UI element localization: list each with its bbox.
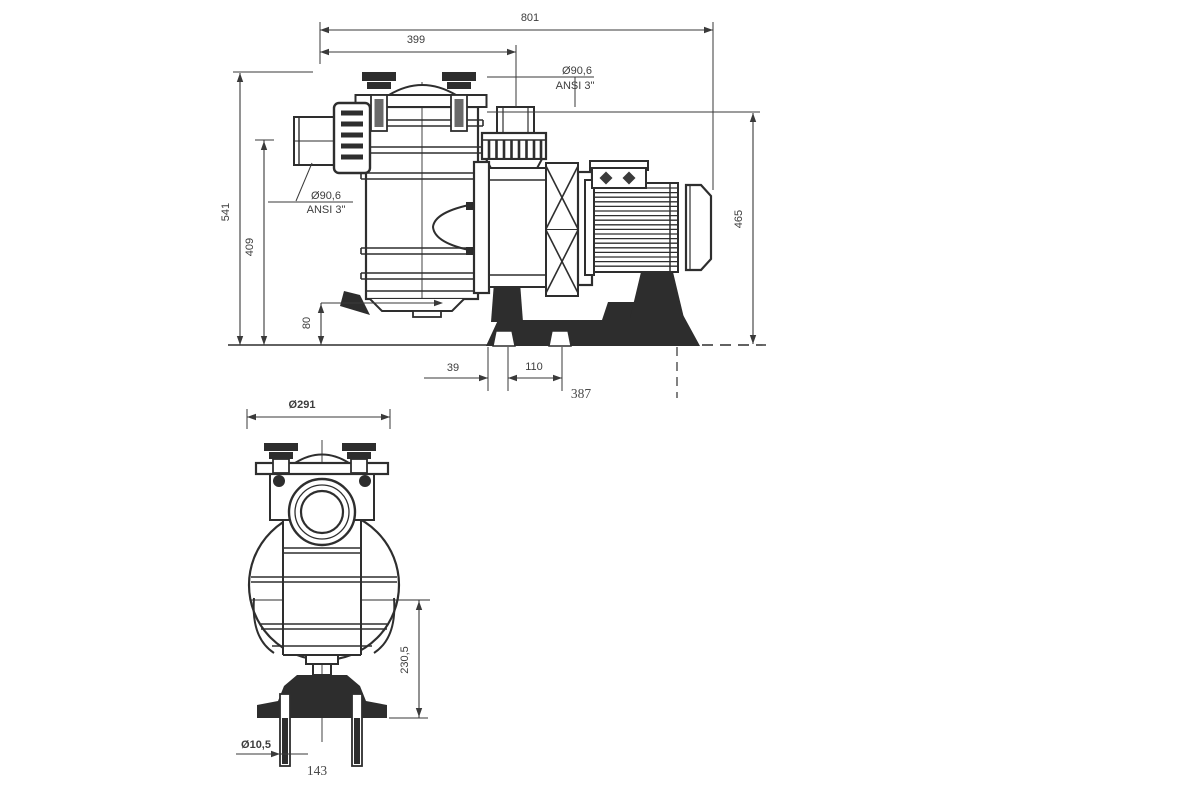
outlet-port-callout: Ø90,6 ANSI 3" <box>487 65 594 107</box>
dim-bolt-spacing-label: 143 <box>307 763 328 778</box>
side-view: 801 399 541 409 <box>220 12 766 401</box>
dim-lid-diameter-label: Ø291 <box>289 399 316 411</box>
lid-dome <box>389 85 456 95</box>
dim-outlet-center-label: 399 <box>407 34 425 46</box>
dim-lid-diameter: Ø291 <box>247 399 390 429</box>
dim-overall-height: 541 <box>220 72 313 345</box>
discharge-union <box>482 107 546 172</box>
dim-base-slots: 39 110 387 <box>424 347 591 401</box>
anchor-bolt-right <box>352 694 362 766</box>
technical-drawing: 801 399 541 409 <box>0 0 1200 800</box>
discharge-crown-nut <box>482 133 546 159</box>
dim-axis-height-label: 230,5 <box>399 646 411 674</box>
outlet-port-diameter-label: Ø90,6 <box>562 65 592 77</box>
base-slot-right <box>549 331 571 346</box>
clamp-knob-right <box>359 475 371 487</box>
ground-line <box>228 345 766 398</box>
inlet-port-diameter-label: Ø90,6 <box>311 190 341 202</box>
dim-slot-spacing-label: 110 <box>525 361 543 373</box>
anchor-bolt-left <box>280 694 290 766</box>
inlet-union <box>294 103 370 173</box>
base-slot-left <box>493 331 515 346</box>
pump-technical-drawing-page: 801 399 541 409 <box>0 0 1200 800</box>
motor-fins <box>594 188 678 266</box>
motor-foot <box>630 272 684 318</box>
dim-overall-length-label: 801 <box>521 12 539 24</box>
front-view: Ø291 230,5 Ø10,5 143 <box>236 399 430 778</box>
dim-drain-height-label: 80 <box>301 317 313 329</box>
motor <box>585 161 711 275</box>
dim-slot-offset-label: 39 <box>447 362 459 374</box>
dim-bolt-hole-label: Ø10,5 <box>241 739 271 751</box>
sight-glass <box>289 479 355 545</box>
dim-overall-height-label: 541 <box>220 203 232 221</box>
volute-body <box>489 168 546 287</box>
dim-base-length-label: 387 <box>571 386 592 401</box>
inlet-port-standard-label: ANSI 3" <box>307 204 346 216</box>
dim-inlet-center-height: 409 <box>244 140 274 345</box>
seal-plate <box>474 162 489 293</box>
motor-bell-front <box>585 180 594 275</box>
drain-boss <box>413 311 441 317</box>
tank-bottom-taper <box>370 299 464 311</box>
dim-outlet-top-height-label: 465 <box>733 210 745 228</box>
clamp-knob-left <box>273 475 285 487</box>
motor-body <box>594 183 678 272</box>
side-lug-right <box>374 598 394 653</box>
dim-bolt-hole: Ø10,5 <box>236 739 308 757</box>
side-lug-left <box>254 598 274 653</box>
pedestal-neck <box>306 655 338 664</box>
dim-inlet-center-height-label: 409 <box>244 238 256 256</box>
front-pedestal <box>257 675 387 718</box>
dim-axis-height: 230,5 <box>389 600 428 718</box>
outlet-port-standard-label: ANSI 3" <box>556 80 595 92</box>
